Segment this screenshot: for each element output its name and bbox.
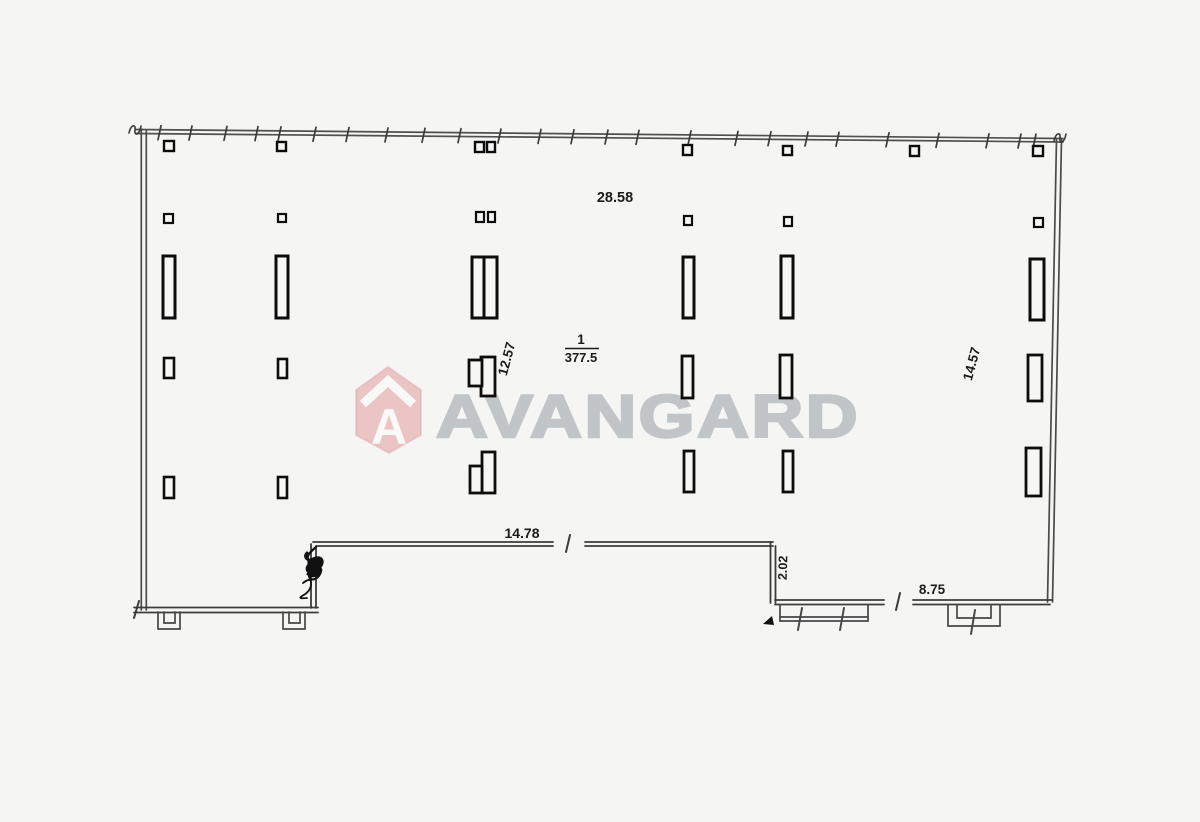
dim-height-left: 12.57	[495, 341, 518, 378]
room-area: 377.5	[565, 350, 598, 365]
column-marker	[1034, 218, 1043, 227]
room-number: 1	[577, 332, 585, 347]
column-marker	[277, 142, 286, 151]
column-marker	[684, 216, 692, 225]
left-wall	[141, 129, 146, 610]
column-marker	[910, 146, 919, 156]
column-marker	[164, 358, 174, 378]
column-marker	[278, 477, 287, 498]
column-marker	[278, 214, 286, 222]
column-marker	[1026, 448, 1041, 496]
column-marker	[276, 256, 288, 318]
exterior-stair-b	[948, 605, 1000, 634]
column-marker	[683, 145, 692, 155]
column-marker	[684, 451, 694, 492]
column-marker	[1030, 259, 1044, 320]
wall-tick	[313, 127, 316, 141]
wall-tick	[224, 126, 227, 140]
column-marker	[484, 257, 497, 318]
column-marker	[487, 142, 495, 152]
wall-tick	[346, 128, 349, 142]
room-label: 1 377.5	[565, 332, 599, 365]
dim-bottom-right: 8.75	[919, 582, 946, 597]
wall-tick	[255, 127, 258, 141]
exterior-stair-a	[780, 605, 868, 630]
column-marker	[683, 257, 694, 318]
column-marker	[163, 256, 175, 318]
column-marker	[475, 142, 484, 152]
watermark-text: AVANGARD	[436, 383, 860, 450]
column-marker	[476, 212, 484, 222]
dim-bottom-middle: 14.78	[504, 525, 539, 541]
wall-tick	[385, 128, 388, 142]
column-marker	[278, 359, 287, 378]
right-wall	[1048, 139, 1062, 602]
column-marker	[1033, 146, 1043, 156]
dim-height-right: 14.57	[960, 346, 983, 383]
logo-letter: A	[371, 399, 407, 455]
column-marker	[482, 452, 495, 493]
column-marker	[164, 141, 174, 151]
column-marker	[1028, 355, 1042, 401]
wall-tick	[158, 126, 161, 140]
wall-tick	[278, 127, 281, 141]
wall-end-arrow	[763, 616, 774, 625]
floorplan-page: A AVANGARD	[0, 0, 1200, 817]
column-marker	[164, 477, 174, 498]
column-marker	[488, 212, 495, 222]
column-marker	[783, 451, 793, 492]
column-marker	[783, 146, 792, 155]
middle-bottom-wall	[313, 535, 773, 552]
column-marker	[469, 360, 482, 386]
exterior-notch	[158, 612, 305, 629]
bottom-right-wall	[775, 593, 1052, 610]
column-marker	[164, 214, 173, 223]
column-marker	[682, 356, 693, 398]
bottom-left-wall	[134, 601, 318, 618]
dim-step-height: 2.02	[776, 555, 791, 580]
column-marker	[784, 217, 792, 226]
column-marker	[472, 257, 484, 318]
floorplan-canvas: A AVANGARD	[0, 0, 1200, 817]
column-marker	[781, 256, 793, 318]
top-wall	[136, 130, 1063, 143]
brand-logo-icon: A	[356, 367, 421, 455]
right-step-wall	[763, 542, 776, 625]
column-marker	[470, 466, 482, 493]
column-marker	[780, 355, 792, 398]
dim-top-width: 28.58	[597, 190, 633, 206]
wall-tick	[189, 126, 192, 140]
